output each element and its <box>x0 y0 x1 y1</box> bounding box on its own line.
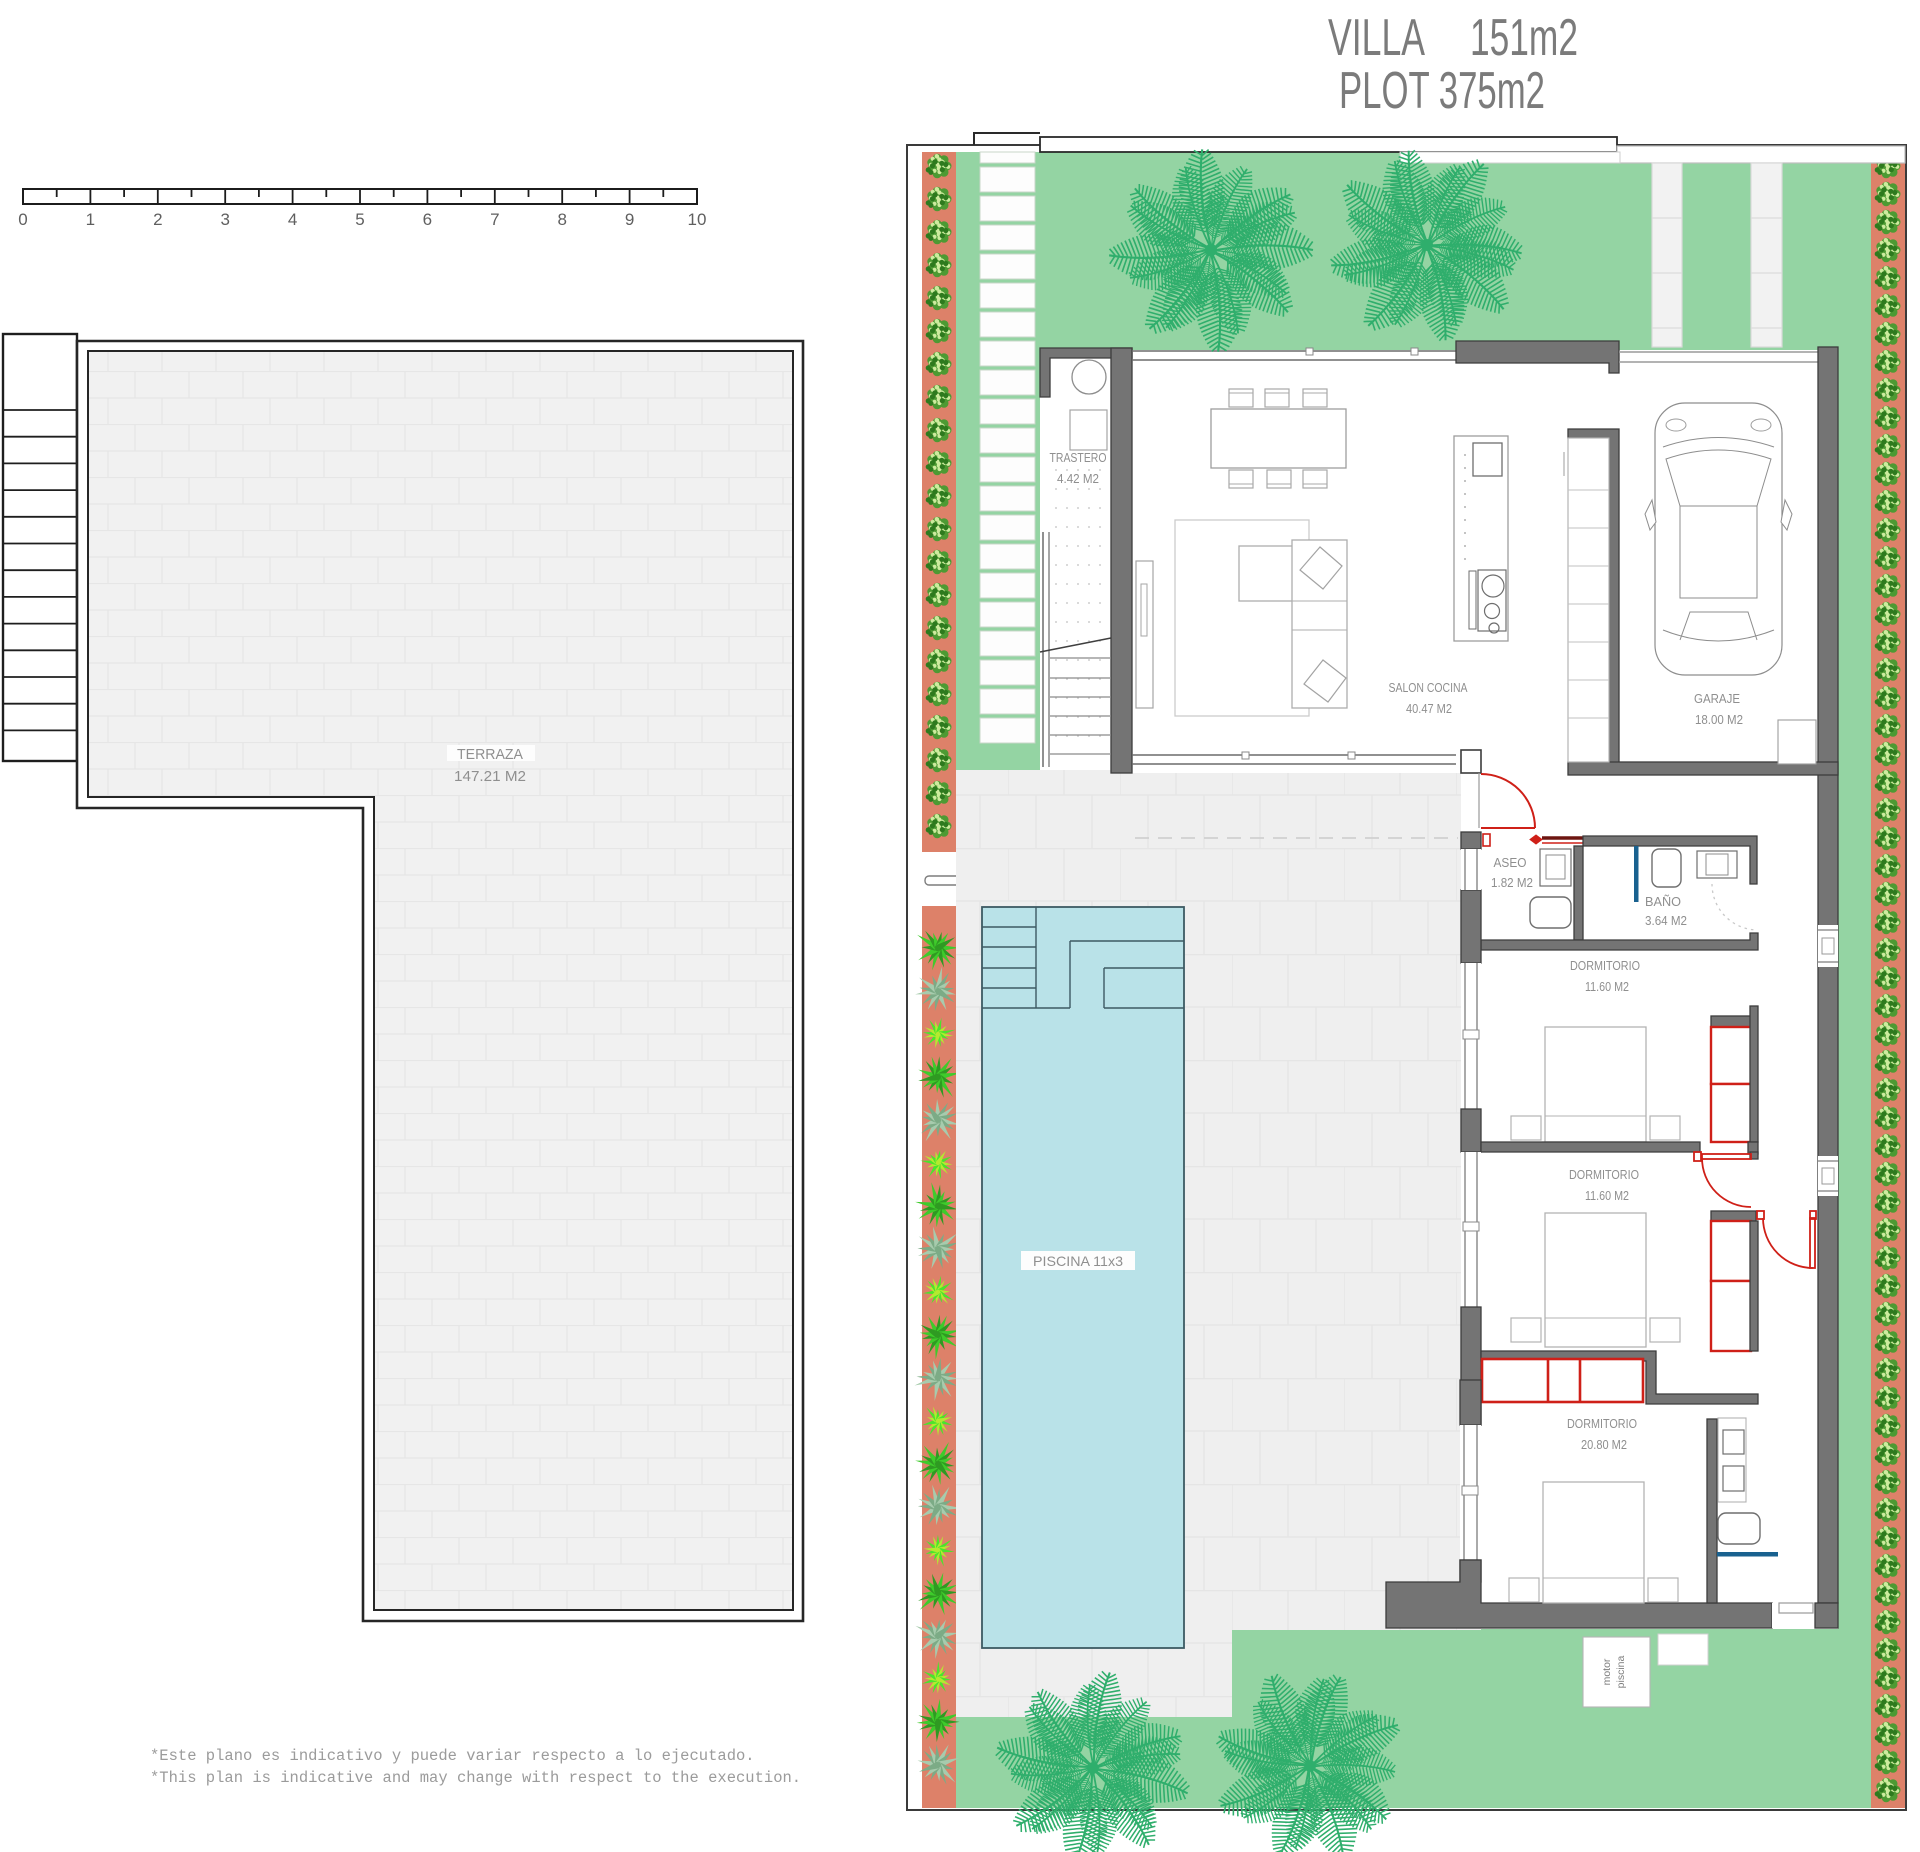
svg-text:7: 7 <box>490 210 499 229</box>
svg-text:4: 4 <box>288 210 297 229</box>
svg-text:40.47 M2: 40.47 M2 <box>1406 702 1452 716</box>
svg-text:TERRAZA: TERRAZA <box>457 746 523 763</box>
svg-text:*This plan is indicative and m: *This plan is indicative and may change … <box>150 1769 801 1787</box>
svg-text:0: 0 <box>18 210 27 229</box>
svg-text:DORMITORIO: DORMITORIO <box>1569 1168 1639 1182</box>
svg-text:3.64 M2: 3.64 M2 <box>1645 914 1687 928</box>
svg-text:motor: motor <box>1601 1658 1613 1685</box>
svg-text:DORMITORIO: DORMITORIO <box>1570 959 1640 973</box>
svg-text:147.21 M2: 147.21 M2 <box>454 768 526 785</box>
svg-text:1.82 M2: 1.82 M2 <box>1491 876 1533 890</box>
svg-text:5: 5 <box>355 210 364 229</box>
svg-text:8: 8 <box>557 210 566 229</box>
svg-text:6: 6 <box>423 210 432 229</box>
svg-text:20.80 M2: 20.80 M2 <box>1581 1438 1627 1452</box>
svg-text:GARAJE: GARAJE <box>1694 692 1740 706</box>
svg-text:VILLA: VILLA <box>1328 9 1425 67</box>
svg-text:18.00 M2: 18.00 M2 <box>1695 713 1743 727</box>
svg-text:1: 1 <box>86 210 95 229</box>
svg-text:BAÑO: BAÑO <box>1645 895 1681 909</box>
svg-text:ASEO: ASEO <box>1494 856 1527 870</box>
svg-text:TRASTERO: TRASTERO <box>1050 451 1107 465</box>
svg-text:11.60 M2: 11.60 M2 <box>1585 1189 1629 1203</box>
svg-text:PLOT 375m2: PLOT 375m2 <box>1339 62 1545 120</box>
svg-text:11.60 M2: 11.60 M2 <box>1585 980 1629 994</box>
svg-text:PISCINA 11x3: PISCINA 11x3 <box>1033 1253 1123 1269</box>
svg-text:*Este plano es indicativo y pu: *Este plano es indicativo y puede variar… <box>150 1747 755 1765</box>
svg-text:DORMITORIO: DORMITORIO <box>1567 1417 1637 1431</box>
svg-text:4.42 M2: 4.42 M2 <box>1057 472 1099 486</box>
svg-text:151m2: 151m2 <box>1470 9 1578 67</box>
svg-text:piscina: piscina <box>1615 1655 1627 1688</box>
svg-text:3: 3 <box>220 210 229 229</box>
svg-text:10: 10 <box>688 210 707 229</box>
svg-text:9: 9 <box>625 210 634 229</box>
svg-text:SALON COCINA: SALON COCINA <box>1389 681 1469 695</box>
svg-text:2: 2 <box>153 210 162 229</box>
